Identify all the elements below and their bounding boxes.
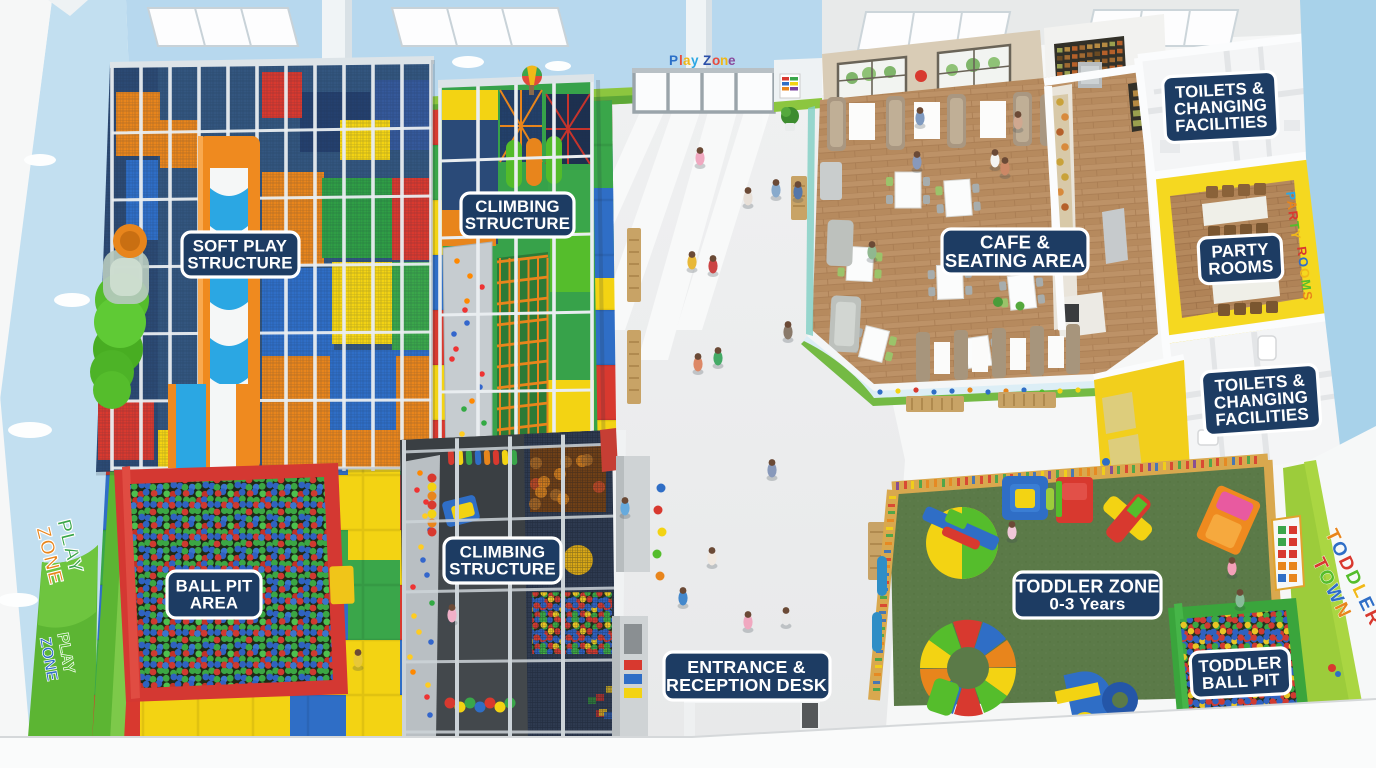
svg-text:ROOMS: ROOMS	[1208, 256, 1274, 278]
svg-text:Z: Z	[703, 53, 712, 68]
svg-text:P: P	[669, 53, 678, 68]
svg-text:a: a	[683, 53, 691, 68]
svg-text:STRUCTURE: STRUCTURE	[465, 214, 570, 233]
svg-text:SEATING AREA: SEATING AREA	[945, 250, 1085, 271]
svg-text:RECEPTION DESK: RECEPTION DESK	[666, 675, 827, 695]
svg-text:TODDLER ZONE: TODDLER ZONE	[1015, 576, 1159, 596]
svg-text:STRUCTURE: STRUCTURE	[449, 560, 556, 579]
svg-text:e: e	[728, 53, 736, 68]
svg-text:AREA: AREA	[190, 593, 238, 612]
svg-text:y: y	[691, 53, 699, 68]
svg-text:0-3 Years: 0-3 Years	[1049, 595, 1125, 614]
svg-text:STRUCTURE: STRUCTURE	[187, 253, 292, 272]
